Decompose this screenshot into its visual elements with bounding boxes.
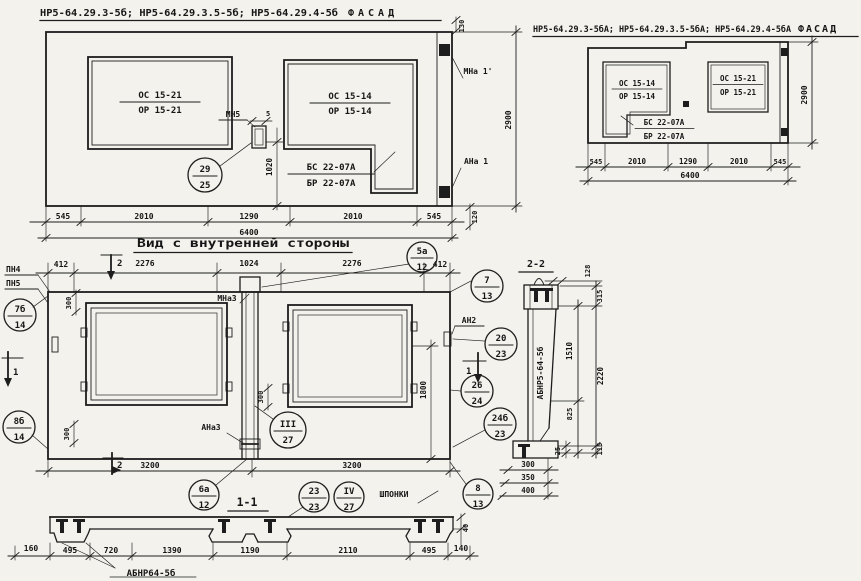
dim: 545 xyxy=(590,158,603,166)
dim-1020: 1020 xyxy=(265,157,274,176)
facade-a-window-left: ОС 15-21 ОР 15-21 xyxy=(88,57,232,149)
inner-window-right xyxy=(283,305,417,407)
inner-left-notch xyxy=(52,337,58,352)
callout-bottom: 14 xyxy=(15,321,26,331)
sec11-left-rib xyxy=(50,517,90,542)
callout-bottom: 13 xyxy=(482,292,493,302)
callout-7-13: 7 13 xyxy=(450,270,503,302)
window-mark: ОС 15-21 xyxy=(138,91,181,101)
inner-window-left xyxy=(81,303,232,405)
dim-115: 115 xyxy=(596,443,604,456)
window-mark: ОС 15-14 xyxy=(328,92,372,102)
mark-mna1: МНа 1' xyxy=(464,67,493,76)
door-mark: БР 22-07А xyxy=(644,132,685,141)
dim-300: 300 xyxy=(257,391,265,404)
dim: 3200 xyxy=(342,461,361,470)
dim-128: 128 xyxy=(584,265,592,278)
inner-bottom-dims: 3200 3200 xyxy=(36,460,460,477)
window-mark: ОС 15-14 xyxy=(619,79,656,88)
dim: 2010 xyxy=(730,157,749,166)
section-1-1-view: 40 160 495 720 1390 1190 2110 495 140 АБ… xyxy=(8,514,478,580)
dim: 495 xyxy=(63,546,78,555)
callout-top: 26 xyxy=(472,381,483,391)
dim-5: 5 xyxy=(266,110,270,118)
callout-top: 7б xyxy=(15,304,26,315)
callout-top: 24б xyxy=(492,413,508,424)
facade-b-marker xyxy=(683,101,689,107)
dim: 545 xyxy=(56,212,71,221)
callout-bottom: 27 xyxy=(344,503,355,513)
facade-b-title-codes: НР5-64.29.3-5бА; НР5-64.29.3.5-5бА; НР5-… xyxy=(533,24,792,35)
section-2-2-view: 2-2 АБНР5-64-5б 128 315 2220 115 1510 82… xyxy=(498,259,605,500)
callout-bottom: 23 xyxy=(496,350,507,360)
inner-view: Вид с внутренней стороны 412 2276 1024 2… xyxy=(2,236,517,517)
mark-pn4: ПН4 xyxy=(6,265,21,274)
dim: 495 xyxy=(422,546,437,555)
window-mark: ОС 15-21 xyxy=(720,74,757,83)
callout-top: 20 xyxy=(496,334,507,344)
dim-1800: 1800 xyxy=(419,380,428,399)
callout-bottom: 12 xyxy=(417,263,428,273)
mark-pn5: ПН5 xyxy=(6,279,21,288)
section-label: 1 xyxy=(466,367,471,377)
callout-23-23: 23 23 xyxy=(288,482,329,517)
inner-panel xyxy=(48,292,450,459)
dim-40: 40 xyxy=(462,524,470,532)
dim: 2010 xyxy=(343,212,362,221)
callout-IV-27: IV 27 xyxy=(334,482,364,513)
dim: 1290 xyxy=(239,212,258,221)
dim: 1024 xyxy=(239,259,258,268)
callout-bottom: 12 xyxy=(199,501,210,511)
dim-120: 120 xyxy=(471,211,479,224)
dim-2900: 2900 xyxy=(504,110,513,129)
callout-24b-23: 24б 23 xyxy=(453,408,516,447)
section-label: 1 xyxy=(13,368,18,378)
dim-825: 825 xyxy=(566,408,574,421)
dim-2220: 2220 xyxy=(596,366,605,385)
sec11-right-rib xyxy=(406,517,453,542)
dim: 720 xyxy=(104,546,119,555)
facade-b-window-left: ОС 15-14 ОР 15-14 БС 22-07А БР 22-07А xyxy=(603,62,694,141)
facade-a-panel xyxy=(46,32,452,206)
mark-mna3: МНа3 xyxy=(217,294,236,303)
dim: 160 xyxy=(24,544,39,553)
sec22-bottom-dims: 300 350 400 xyxy=(498,459,558,500)
callout-bottom: 23 xyxy=(495,430,506,440)
mark-ana3: АНа3 xyxy=(201,423,220,432)
section-label: 2 xyxy=(117,259,122,269)
mark-ana1: АНа 1 xyxy=(464,157,488,166)
callout-29-25: 29 25 xyxy=(188,143,251,192)
window-mark: ОР 15-21 xyxy=(720,88,757,97)
facade-a-title-word: ФАСАД xyxy=(348,8,398,19)
dim: 545 xyxy=(774,158,787,166)
shponka-notch xyxy=(242,534,258,542)
door-mark: БС 22-07А xyxy=(307,163,356,173)
callout-top: 29 xyxy=(200,165,211,175)
dim-1510: 1510 xyxy=(565,341,574,360)
dim: 350 xyxy=(521,473,535,482)
window-mark: ОР 15-14 xyxy=(328,107,372,117)
door-mark: БС 22-07А xyxy=(644,118,685,127)
callout-top: IV xyxy=(344,487,355,497)
callout-top: 23 xyxy=(309,487,320,497)
door-mark: БР 22-07А xyxy=(307,179,356,189)
facade-a-window-right: ОС 15-14 ОР 15-14 БС 22-07А БР 22-07А xyxy=(284,60,417,193)
facade-b-title-word: ФАСАД xyxy=(798,24,838,35)
dim: 140 xyxy=(454,544,469,553)
callout-bottom: 14 xyxy=(14,433,25,443)
facade-a-end-anchor-bottom xyxy=(439,186,450,198)
engineering-drawing: НР5-64.29.3-5б; НР5-64.29.3.5-5б; НР5-64… xyxy=(0,0,861,581)
inner-top-dims: 412 2276 1024 2276 412 xyxy=(36,259,460,292)
facade-a-view: НР5-64.29.3-5б; НР5-64.29.3.5-5б; НР5-64… xyxy=(30,7,522,242)
window-mark: ОР 15-14 xyxy=(619,92,656,101)
inner-view-title: Вид с внутренней стороны xyxy=(137,236,349,250)
section-mark-1-left: 1 xyxy=(2,352,23,387)
dim: 2110 xyxy=(338,546,357,555)
dim: 412 xyxy=(54,260,69,269)
callout-III-27: III 27 xyxy=(255,406,306,448)
callout-bottom: 27 xyxy=(283,436,294,446)
callout-8-13: 8 13 xyxy=(450,462,493,510)
dim: 2010 xyxy=(628,157,647,166)
dim: 300 xyxy=(521,460,535,469)
facade-a-title-codes: НР5-64.29.3-5б; НР5-64.29.3.5-5б; НР5-64… xyxy=(40,7,338,19)
dim-2900: 2900 xyxy=(800,85,809,104)
facade-b-bottom-dims: 545 2010 1290 2010 545 6400 xyxy=(576,144,800,185)
mn5-label: МН5 xyxy=(226,110,241,119)
facade-b-window-right: ОС 15-21 ОР 15-21 xyxy=(708,62,768,112)
mark-an2: АН2 xyxy=(462,316,477,325)
callout-8b-14: 8б 14 xyxy=(3,411,48,449)
facade-b-view: НР5-64.29.3-5бА; НР5-64.29.3.5-5бА; НР5-… xyxy=(533,24,858,185)
callout-top: 7 xyxy=(484,276,489,286)
section-label: 2 xyxy=(117,461,122,471)
callout-20-23: 20 23 xyxy=(453,328,517,360)
facade-a-end-anchor-top xyxy=(439,44,450,56)
callout-26-24: 26 24 xyxy=(450,375,493,407)
callout-top: 8 xyxy=(475,484,480,494)
inner-middle-strip xyxy=(240,292,260,459)
dim: 2276 xyxy=(342,259,361,268)
callout-top: 6а xyxy=(199,485,210,495)
dim-130: 130 xyxy=(458,20,466,33)
sec22-panel-label: АБНР5-64-5б xyxy=(535,346,545,399)
section-mark-2-top: 2 xyxy=(101,255,122,280)
callout-top: III xyxy=(280,420,296,430)
dim: 1390 xyxy=(162,546,181,555)
sec11-middle-rib xyxy=(209,519,291,542)
sec22-bottom-flange xyxy=(513,441,558,458)
callout-bottom: 25 xyxy=(200,181,211,191)
lifting-loop xyxy=(534,279,544,286)
label-shponki: ШПОНКИ xyxy=(380,490,409,499)
callout-7b-14: 7б 14 xyxy=(4,296,48,331)
callout-bottom: 24 xyxy=(472,397,483,407)
callout-bottom: 23 xyxy=(309,503,320,513)
sec11-dims: 160 495 720 1390 1190 2110 495 140 xyxy=(8,543,478,560)
dim: 1290 xyxy=(679,157,698,166)
dim: 545 xyxy=(427,212,442,221)
sec22-top-flange xyxy=(524,285,558,309)
window-mark: ОР 15-21 xyxy=(138,106,181,116)
dim-315: 315 xyxy=(596,290,604,303)
callout-top: 8б xyxy=(14,416,25,427)
callout-top: 5а xyxy=(417,247,428,257)
dim: 400 xyxy=(521,486,535,495)
dim-25: 25 xyxy=(554,447,562,455)
dim: 2276 xyxy=(135,259,154,268)
dim: 3200 xyxy=(140,461,159,470)
callout-bottom: 13 xyxy=(473,500,484,510)
dim: 2010 xyxy=(134,212,153,221)
dim-total: 6400 xyxy=(680,171,699,180)
dim-300: 300 xyxy=(65,297,73,310)
section-1-1-title: 1-1 xyxy=(237,495,258,509)
drawing-sheet: НР5-64.29.3-5б; НР5-64.29.3.5-5б; НР5-64… xyxy=(0,0,861,581)
sec11-panel-label: АБНР64-5б xyxy=(127,568,176,579)
dim: 1190 xyxy=(240,546,259,555)
inner-top-tab xyxy=(240,277,260,292)
section-2-2-title: 2-2 xyxy=(527,259,545,270)
dim-300: 300 xyxy=(63,428,71,441)
